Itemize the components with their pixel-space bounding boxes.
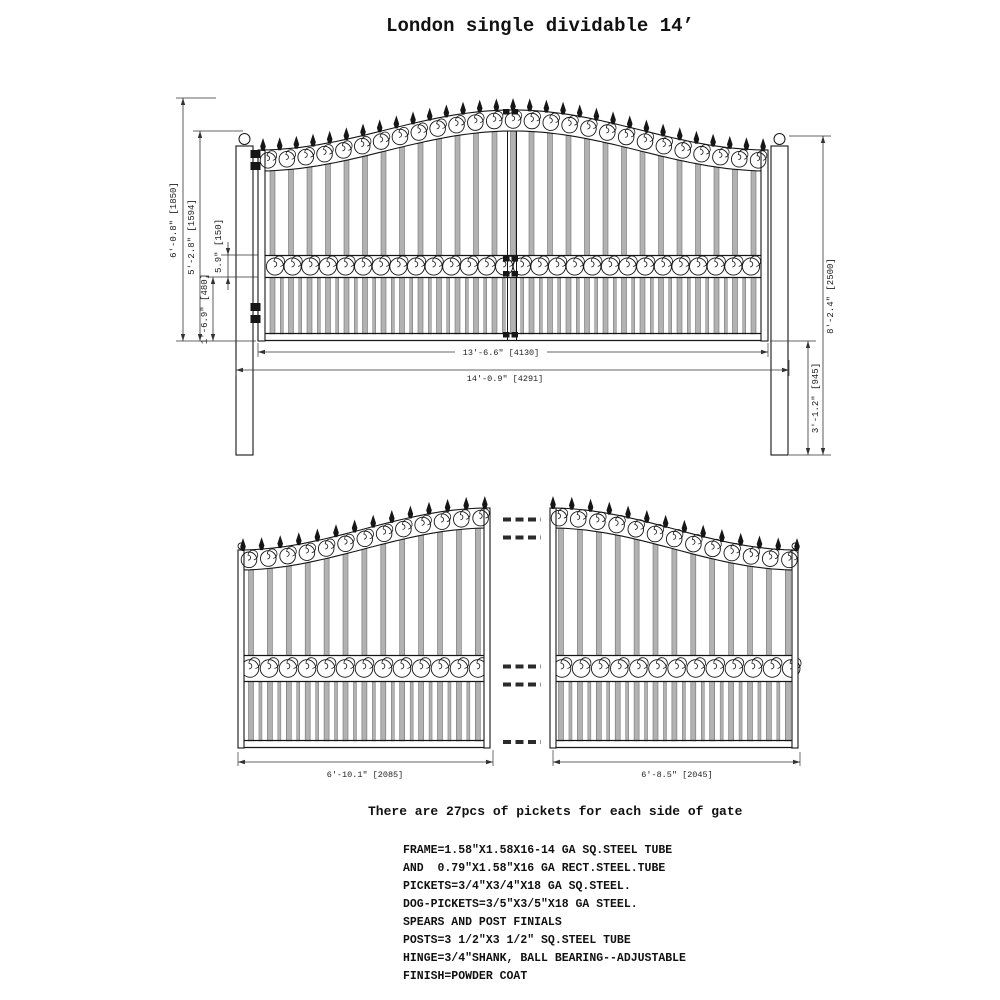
dim-overall-height-label: 6'-0.8" [1850]: [169, 182, 179, 258]
dim-gate-width-label: 13'-6.6" [4130]: [463, 348, 540, 358]
spec-line-frame-and: AND 0.79"X1.58"X16 GA RECT.STEEL.TUBE: [403, 862, 665, 875]
spec-line-frame: FRAME=1.58"X1.58X16-14 GA SQ.STEEL TUBE: [403, 844, 672, 857]
dim-left-leaf-label: 6'-10.1" [2085]: [327, 770, 404, 780]
spec-line-spears: SPEARS AND POST FINIALS: [403, 916, 562, 929]
gate-drawing: London single dividable 14’ 6'-0.8" [185…: [0, 0, 1000, 1000]
top-view: [236, 98, 788, 455]
drawing-geometry: [176, 98, 831, 766]
spec-line-hinge: HINGE=3/4"SHANK, BALL BEARING--ADJUSTABL…: [403, 952, 686, 965]
dim-post-height-label: 8'-2.4" [2500]: [826, 258, 836, 334]
dim-mid-band-label: 5.9" [150]: [214, 219, 224, 273]
pickets-note: There are 27pcs of pickets for each side…: [368, 804, 743, 819]
dim-overall-width-label: 14'-0.9" [4291]: [467, 374, 544, 384]
blueprint-page: London single dividable 14’ 6'-0.8" [185…: [0, 0, 1000, 1000]
dim-frame-side-height-label: 5'-2.8" [1594]: [187, 199, 197, 275]
spec-line-pickets: PICKETS=3/4"X3/4"X18 GA SQ.STEEL.: [403, 880, 631, 893]
spec-line-finish: FINISH=POWDER COAT: [403, 970, 527, 983]
dim-post-lower-label: 3'-1.2" [945]: [811, 363, 821, 433]
spec-line-posts: POSTS=3 1/2"X3 1/2" SQ.STEEL TUBE: [403, 934, 631, 947]
spec-line-dog-pickets: DOG-PICKETS=3/5"X3/5"X18 GA STEEL.: [403, 898, 638, 911]
dim-bottom-section-label: 1'-6.9" [480]: [200, 274, 210, 344]
dim-right-leaf-label: 6'-8.5" [2045]: [641, 770, 712, 780]
split-view: [238, 496, 801, 748]
drawing-title: London single dividable 14’: [386, 15, 694, 37]
